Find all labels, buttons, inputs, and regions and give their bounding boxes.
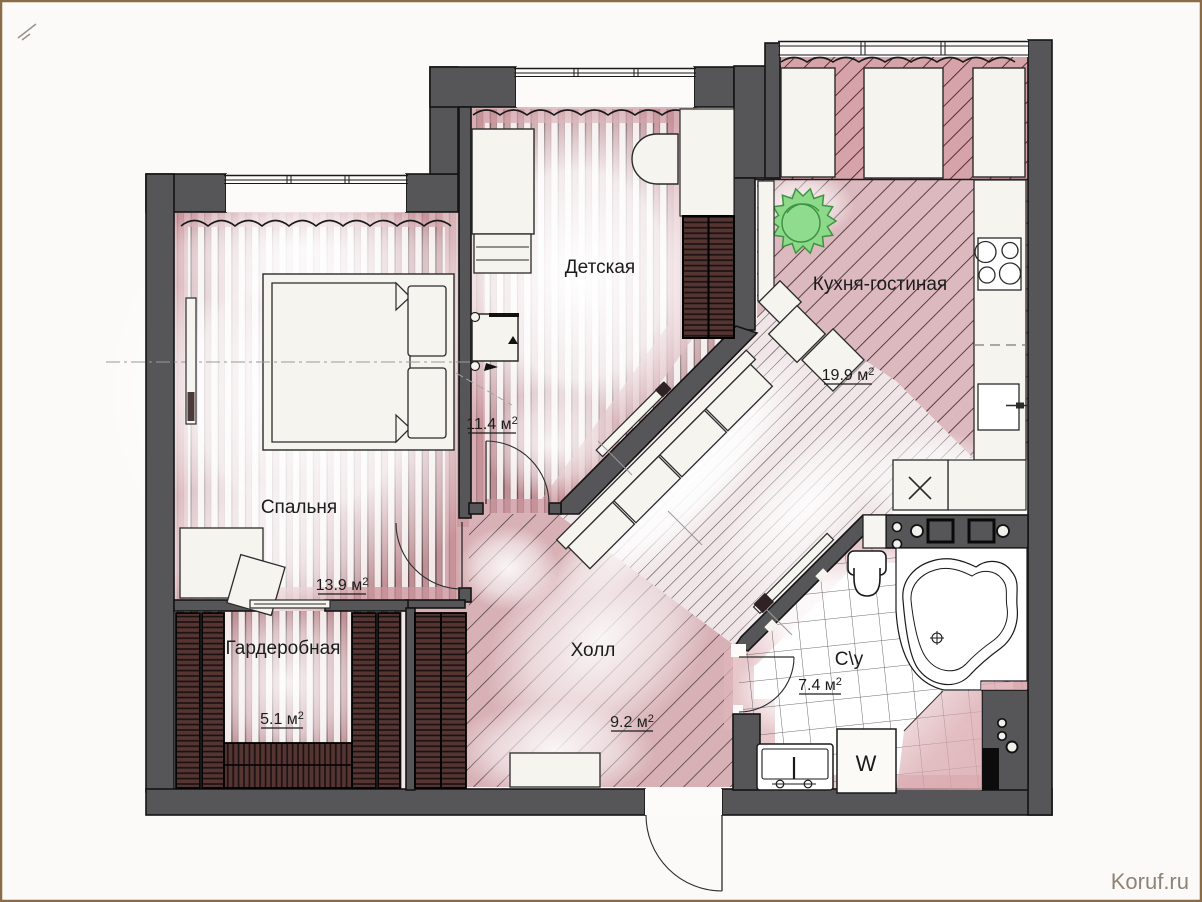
svg-text:11.4 м2: 11.4 м2 <box>466 415 518 433</box>
svg-text:19.9 м2: 19.9 м2 <box>822 366 875 384</box>
svg-text:Детская: Детская <box>565 257 635 278</box>
svg-text:13.9 м2: 13.9 м2 <box>316 576 369 594</box>
svg-text:Спальня: Спальня <box>261 497 337 518</box>
svg-text:Гардеробная: Гардеробная <box>226 638 341 659</box>
svg-text:Холл: Холл <box>571 640 616 661</box>
svg-text:9.2 м2: 9.2 м2 <box>610 713 654 731</box>
svg-text:Koruf.ru: Koruf.ru <box>1111 869 1189 894</box>
svg-text:5.1 м2: 5.1 м2 <box>260 710 304 728</box>
svg-text:Кухня-гостиная: Кухня-гостиная <box>813 274 947 295</box>
svg-text:7.4 м2: 7.4 м2 <box>798 676 842 694</box>
svg-text:W: W <box>856 751 877 776</box>
svg-text:С\у: С\у <box>835 649 864 670</box>
